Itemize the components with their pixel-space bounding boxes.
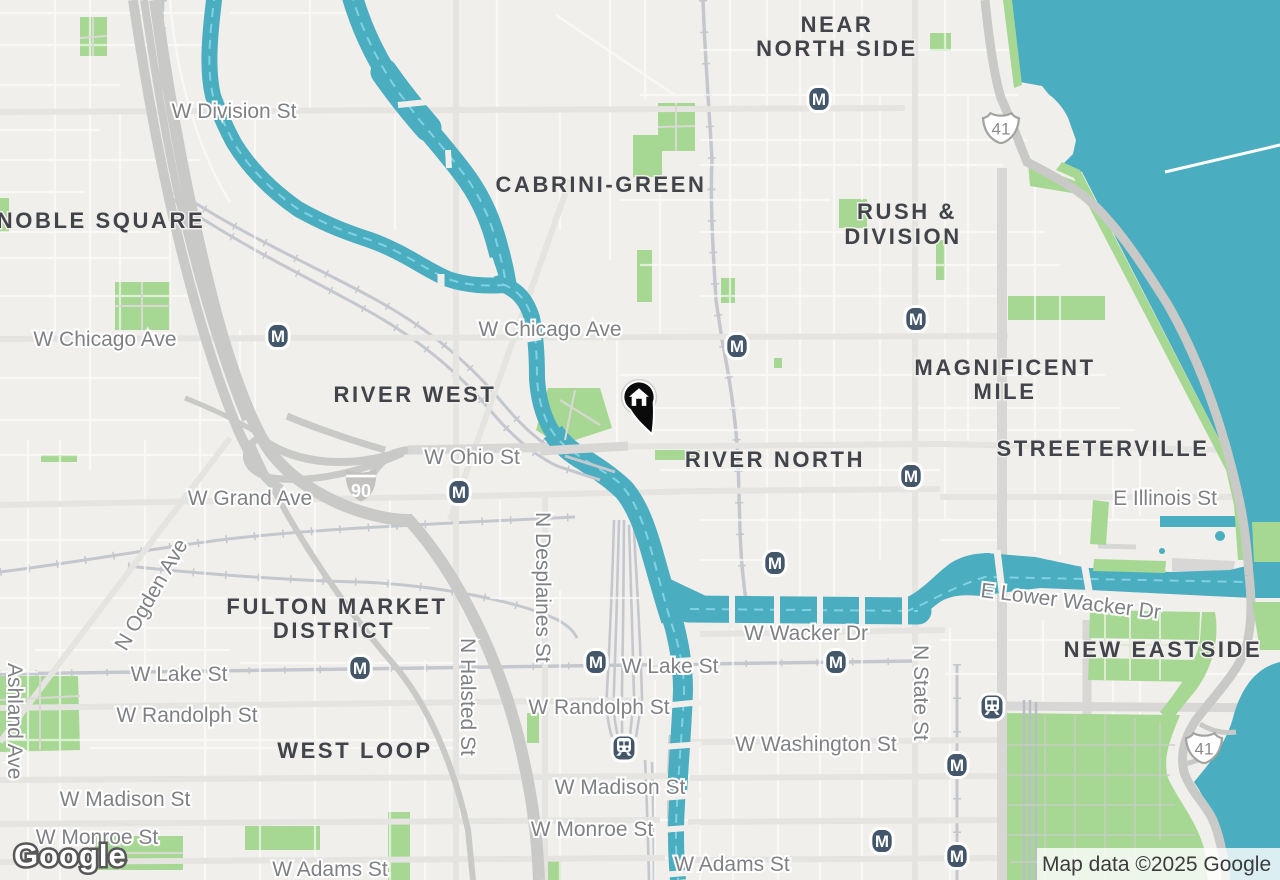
svg-text:N State St: N State St bbox=[909, 645, 932, 741]
svg-text:DIVISION: DIVISION bbox=[844, 224, 961, 249]
svg-text:NORTH SIDE: NORTH SIDE bbox=[756, 36, 918, 61]
svg-text:RIVER NORTH: RIVER NORTH bbox=[685, 447, 865, 472]
svg-text:M: M bbox=[452, 483, 466, 502]
svg-text:W Randolph St: W Randolph St bbox=[528, 696, 669, 719]
svg-text:W Adams St: W Adams St bbox=[272, 858, 388, 880]
svg-text:41: 41 bbox=[992, 120, 1011, 139]
svg-text:M: M bbox=[950, 847, 964, 866]
svg-text:W Lake St: W Lake St bbox=[131, 663, 228, 686]
svg-text:E Illinois St: E Illinois St bbox=[1113, 487, 1217, 510]
svg-text:MILE: MILE bbox=[974, 379, 1037, 404]
svg-text:M: M bbox=[812, 90, 826, 109]
svg-text:STREETERVILLE: STREETERVILLE bbox=[996, 436, 1209, 461]
svg-text:M: M bbox=[875, 832, 889, 851]
svg-text:Ashland Ave: Ashland Ave bbox=[3, 663, 26, 779]
svg-text:FULTON MARKET: FULTON MARKET bbox=[226, 594, 447, 619]
svg-text:W Grand Ave: W Grand Ave bbox=[188, 487, 313, 510]
svg-text:W Chicago Ave: W Chicago Ave bbox=[478, 318, 621, 341]
svg-text:NEW EASTSIDE: NEW EASTSIDE bbox=[1064, 637, 1263, 662]
svg-text:M: M bbox=[271, 327, 285, 346]
svg-text:W Randolph St: W Randolph St bbox=[116, 704, 257, 727]
svg-text:W Washington St: W Washington St bbox=[735, 733, 897, 756]
svg-text:NEAR: NEAR bbox=[801, 12, 874, 37]
svg-text:Google: Google bbox=[14, 838, 127, 873]
svg-text:RIVER WEST: RIVER WEST bbox=[334, 382, 497, 407]
svg-text:W Ohio St: W Ohio St bbox=[424, 446, 520, 469]
svg-text:M: M bbox=[353, 659, 367, 678]
svg-text:W Madison St: W Madison St bbox=[555, 776, 686, 799]
svg-text:M: M bbox=[730, 337, 744, 356]
svg-text:W Wacker Dr: W Wacker Dr bbox=[744, 622, 868, 645]
svg-text:N Desplaines St: N Desplaines St bbox=[531, 512, 554, 663]
svg-text:M: M bbox=[768, 554, 782, 573]
svg-text:CABRINI-GREEN: CABRINI-GREEN bbox=[495, 172, 706, 197]
svg-text:MAGNIFICENT: MAGNIFICENT bbox=[914, 355, 1095, 380]
svg-text:RUSH &: RUSH & bbox=[857, 199, 957, 224]
svg-text:M: M bbox=[829, 653, 843, 672]
svg-text:M: M bbox=[589, 653, 603, 672]
svg-text:W Madison St: W Madison St bbox=[60, 788, 191, 811]
svg-text:Map data ©2025 Google: Map data ©2025 Google bbox=[1042, 853, 1271, 876]
svg-text:M: M bbox=[904, 467, 918, 486]
svg-text:M: M bbox=[909, 310, 923, 329]
svg-text:90: 90 bbox=[351, 481, 371, 501]
svg-text:N Halsted St: N Halsted St bbox=[456, 638, 479, 756]
svg-text:W Adams St: W Adams St bbox=[674, 853, 790, 876]
svg-text:NOBLE SQUARE: NOBLE SQUARE bbox=[0, 208, 205, 233]
svg-text:W Monroe St: W Monroe St bbox=[531, 818, 654, 841]
svg-text:W Chicago Ave: W Chicago Ave bbox=[33, 328, 176, 351]
svg-text:DISTRICT: DISTRICT bbox=[273, 618, 395, 643]
svg-text:W Lake St: W Lake St bbox=[622, 655, 719, 678]
svg-text:41: 41 bbox=[1195, 740, 1214, 759]
svg-text:W Division St: W Division St bbox=[172, 100, 297, 123]
svg-text:M: M bbox=[950, 756, 964, 775]
svg-text:WEST LOOP: WEST LOOP bbox=[277, 738, 432, 763]
